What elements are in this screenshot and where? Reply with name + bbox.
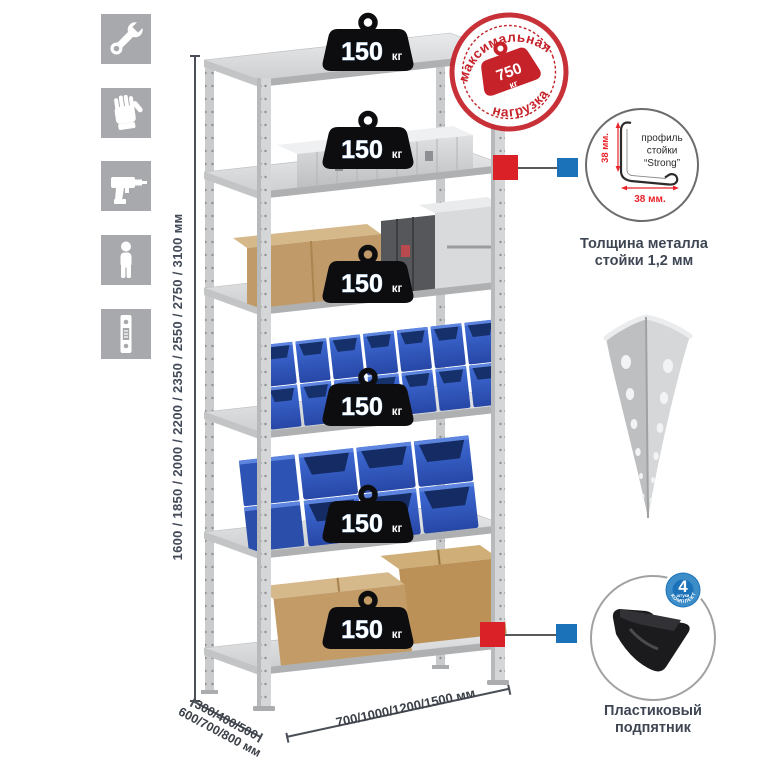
blue-marker-top: [557, 158, 578, 177]
weight-value: 150: [341, 393, 383, 421]
rack-post-icon: [101, 309, 151, 359]
weight-ring: [361, 114, 375, 128]
weight-unit: кг: [392, 629, 403, 641]
post-profile-detail: 38 мм. 38 мм. профиль стойки “Strong”: [585, 108, 699, 222]
profile-caption: Толщина металла стойки 1,2 мм: [578, 236, 710, 270]
red-marker-bottom: [480, 622, 505, 647]
weight-value: 150: [341, 616, 383, 644]
profile-word-1: профиль: [641, 132, 682, 144]
profile-caption-line-1: Толщина металла: [578, 236, 710, 253]
quantity-badge: 4 штуки в комплекте: [662, 569, 704, 616]
weight-ring: [361, 371, 375, 385]
red-marker-top: [493, 155, 518, 180]
shelf-weight-1: 150 кг: [320, 12, 416, 83]
weight-unit: кг: [392, 149, 403, 161]
profile-word-3: “Strong”: [644, 158, 680, 169]
profile-caption-line-2: стойки 1,2 мм: [578, 253, 710, 270]
shelf-weight-6: 150 кг: [320, 590, 416, 661]
weight-unit: кг: [392, 523, 403, 535]
connector-line-bottom: [504, 634, 556, 636]
gloves-icon: [101, 88, 151, 138]
shelving-infographic: 1600 / 1850 / 2000 / 2200 / 2350 / 2550 …: [0, 0, 765, 765]
shelf-weight-3: 150 кг: [320, 244, 416, 315]
weight-ring: [361, 248, 375, 262]
weight-value: 150: [341, 270, 383, 298]
weight-unit: кг: [392, 406, 403, 418]
weight-value: 150: [341, 136, 383, 164]
blue-marker-bottom: [556, 624, 577, 643]
angle-post-image: [596, 310, 700, 527]
weight-unit: кг: [392, 283, 403, 295]
weight-unit: кг: [392, 51, 403, 63]
weight-ring: [361, 488, 375, 502]
max-load-stamp: максимальная нагрузка 750 кг: [447, 10, 571, 139]
profile-word-2: стойки: [647, 146, 678, 157]
foot-caption-line-2: подпятник: [578, 720, 728, 737]
weight-value: 150: [341, 38, 383, 66]
weight-ring: [361, 594, 375, 608]
wrench-icon: [101, 14, 151, 64]
shelf-weight-5: 150 кг: [320, 484, 416, 555]
drill-icon: [101, 161, 151, 211]
weight-value: 150: [341, 510, 383, 538]
person-icon: [101, 235, 151, 285]
shelf-weight-2: 150 кг: [320, 110, 416, 181]
weight-ring: [361, 16, 375, 30]
foot-caption-line-1: Пластиковый: [578, 703, 728, 720]
foot-caption: Пластиковый подпятник: [578, 703, 728, 737]
profile-width-dim: 38 мм.: [634, 194, 666, 205]
shelf-weight-4: 150 кг: [320, 367, 416, 438]
profile-height-dim: 38 мм.: [600, 133, 611, 163]
connector-line-top: [517, 167, 557, 169]
badge-small-label: штуки: [677, 593, 690, 598]
